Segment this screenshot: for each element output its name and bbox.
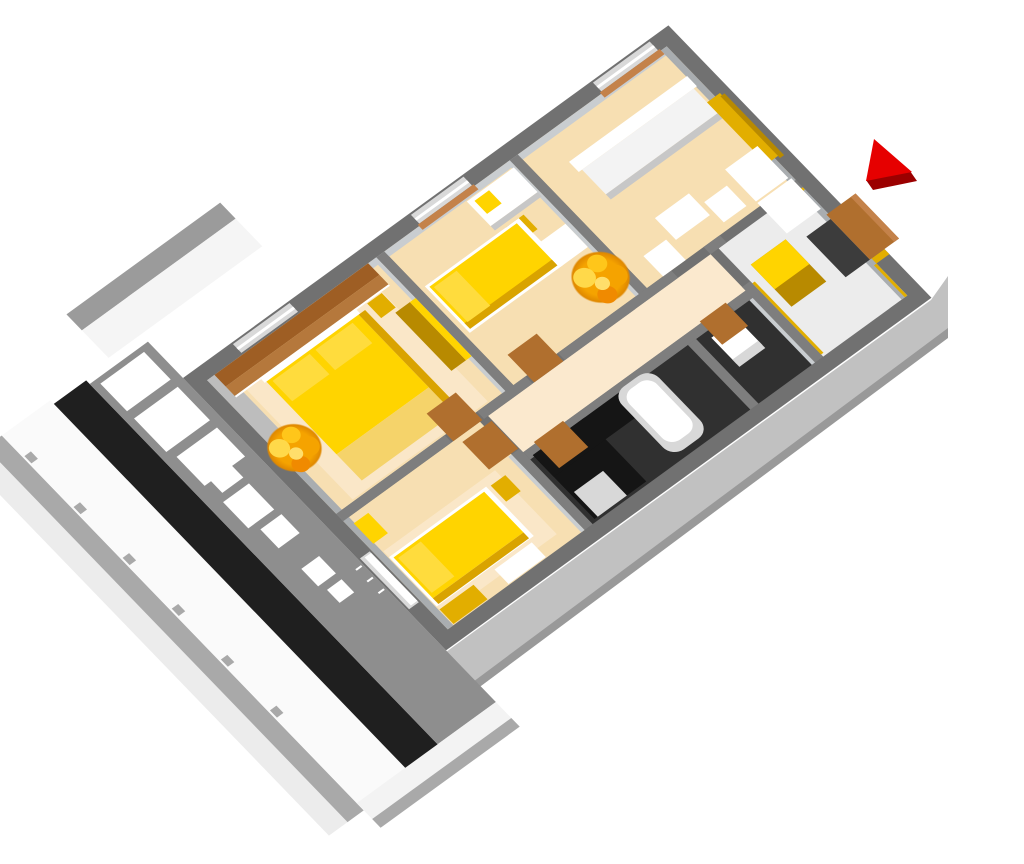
entrance-arrow-shadow-face bbox=[866, 171, 917, 190]
entrance-arrow-icon bbox=[866, 139, 912, 181]
floorplan-render-canvas: { "image_type": "3d-perspective-apartmen… bbox=[0, 0, 1024, 864]
